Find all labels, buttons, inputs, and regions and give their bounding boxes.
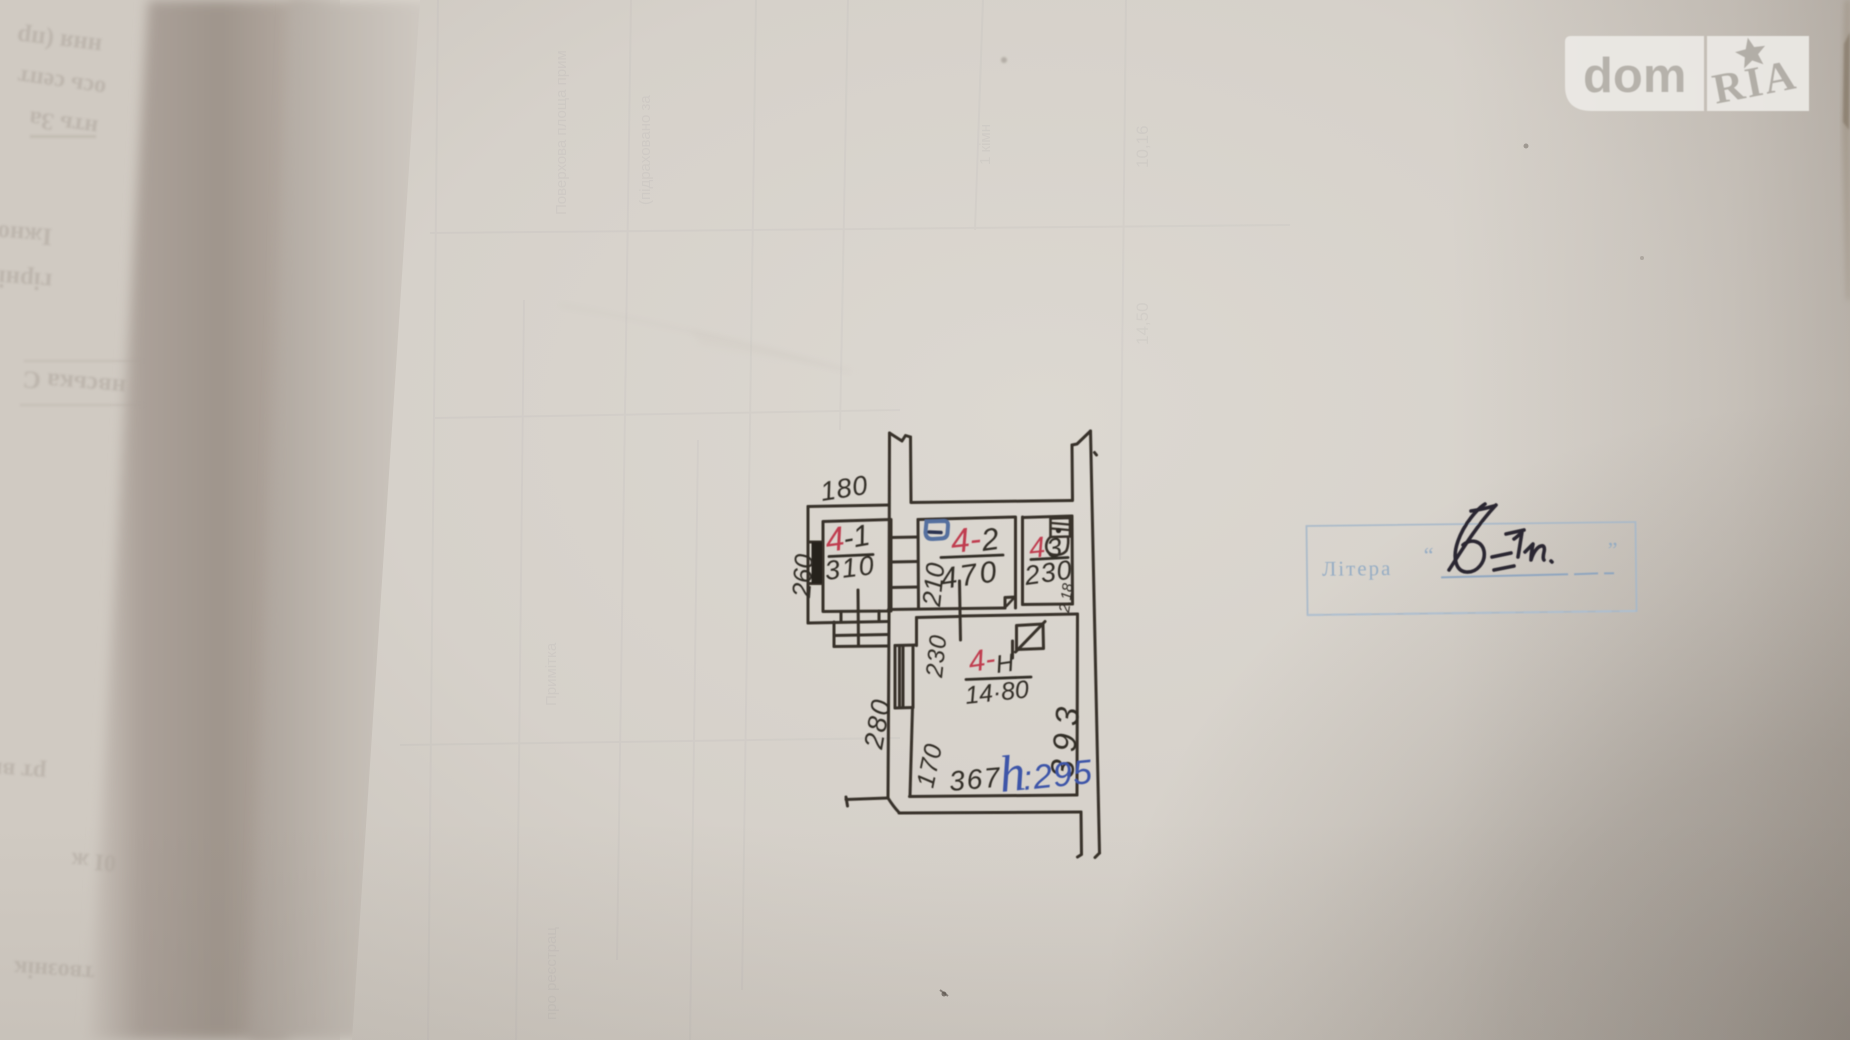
svg-text:-1: -1 xyxy=(840,519,872,556)
svg-text:про реєстрац: про реєстрац xyxy=(543,927,560,1020)
svg-text::295: :295 xyxy=(1021,753,1095,798)
svg-text:14,50: 14,50 xyxy=(1133,302,1152,345)
svg-text:1 кімн: 1 кімн xyxy=(977,124,994,165)
svg-text:367: 367 xyxy=(948,762,1003,797)
svg-text:4-: 4- xyxy=(966,643,997,679)
svg-text:(підраховано за: (підраховано за xyxy=(637,95,654,205)
svg-text:рт вн: рт вн xyxy=(0,756,47,786)
svg-text:Поверхова площа прим: Поверхова площа прим xyxy=(553,50,570,215)
svg-text:10,16: 10,16 xyxy=(1133,125,1152,168)
svg-text:“: “ xyxy=(1424,542,1434,567)
svg-text:Примітка: Примітка xyxy=(543,642,560,706)
svg-text:dom: dom xyxy=(1583,49,1686,103)
svg-text:210: 210 xyxy=(916,561,951,609)
svg-text:”: ” xyxy=(1608,537,1618,562)
svg-text:230: 230 xyxy=(921,633,952,680)
svg-text:0І ж: 0І ж xyxy=(70,847,117,876)
svg-text:Літера: Літера xyxy=(1322,556,1393,581)
svg-text:260: 260 xyxy=(786,553,819,600)
